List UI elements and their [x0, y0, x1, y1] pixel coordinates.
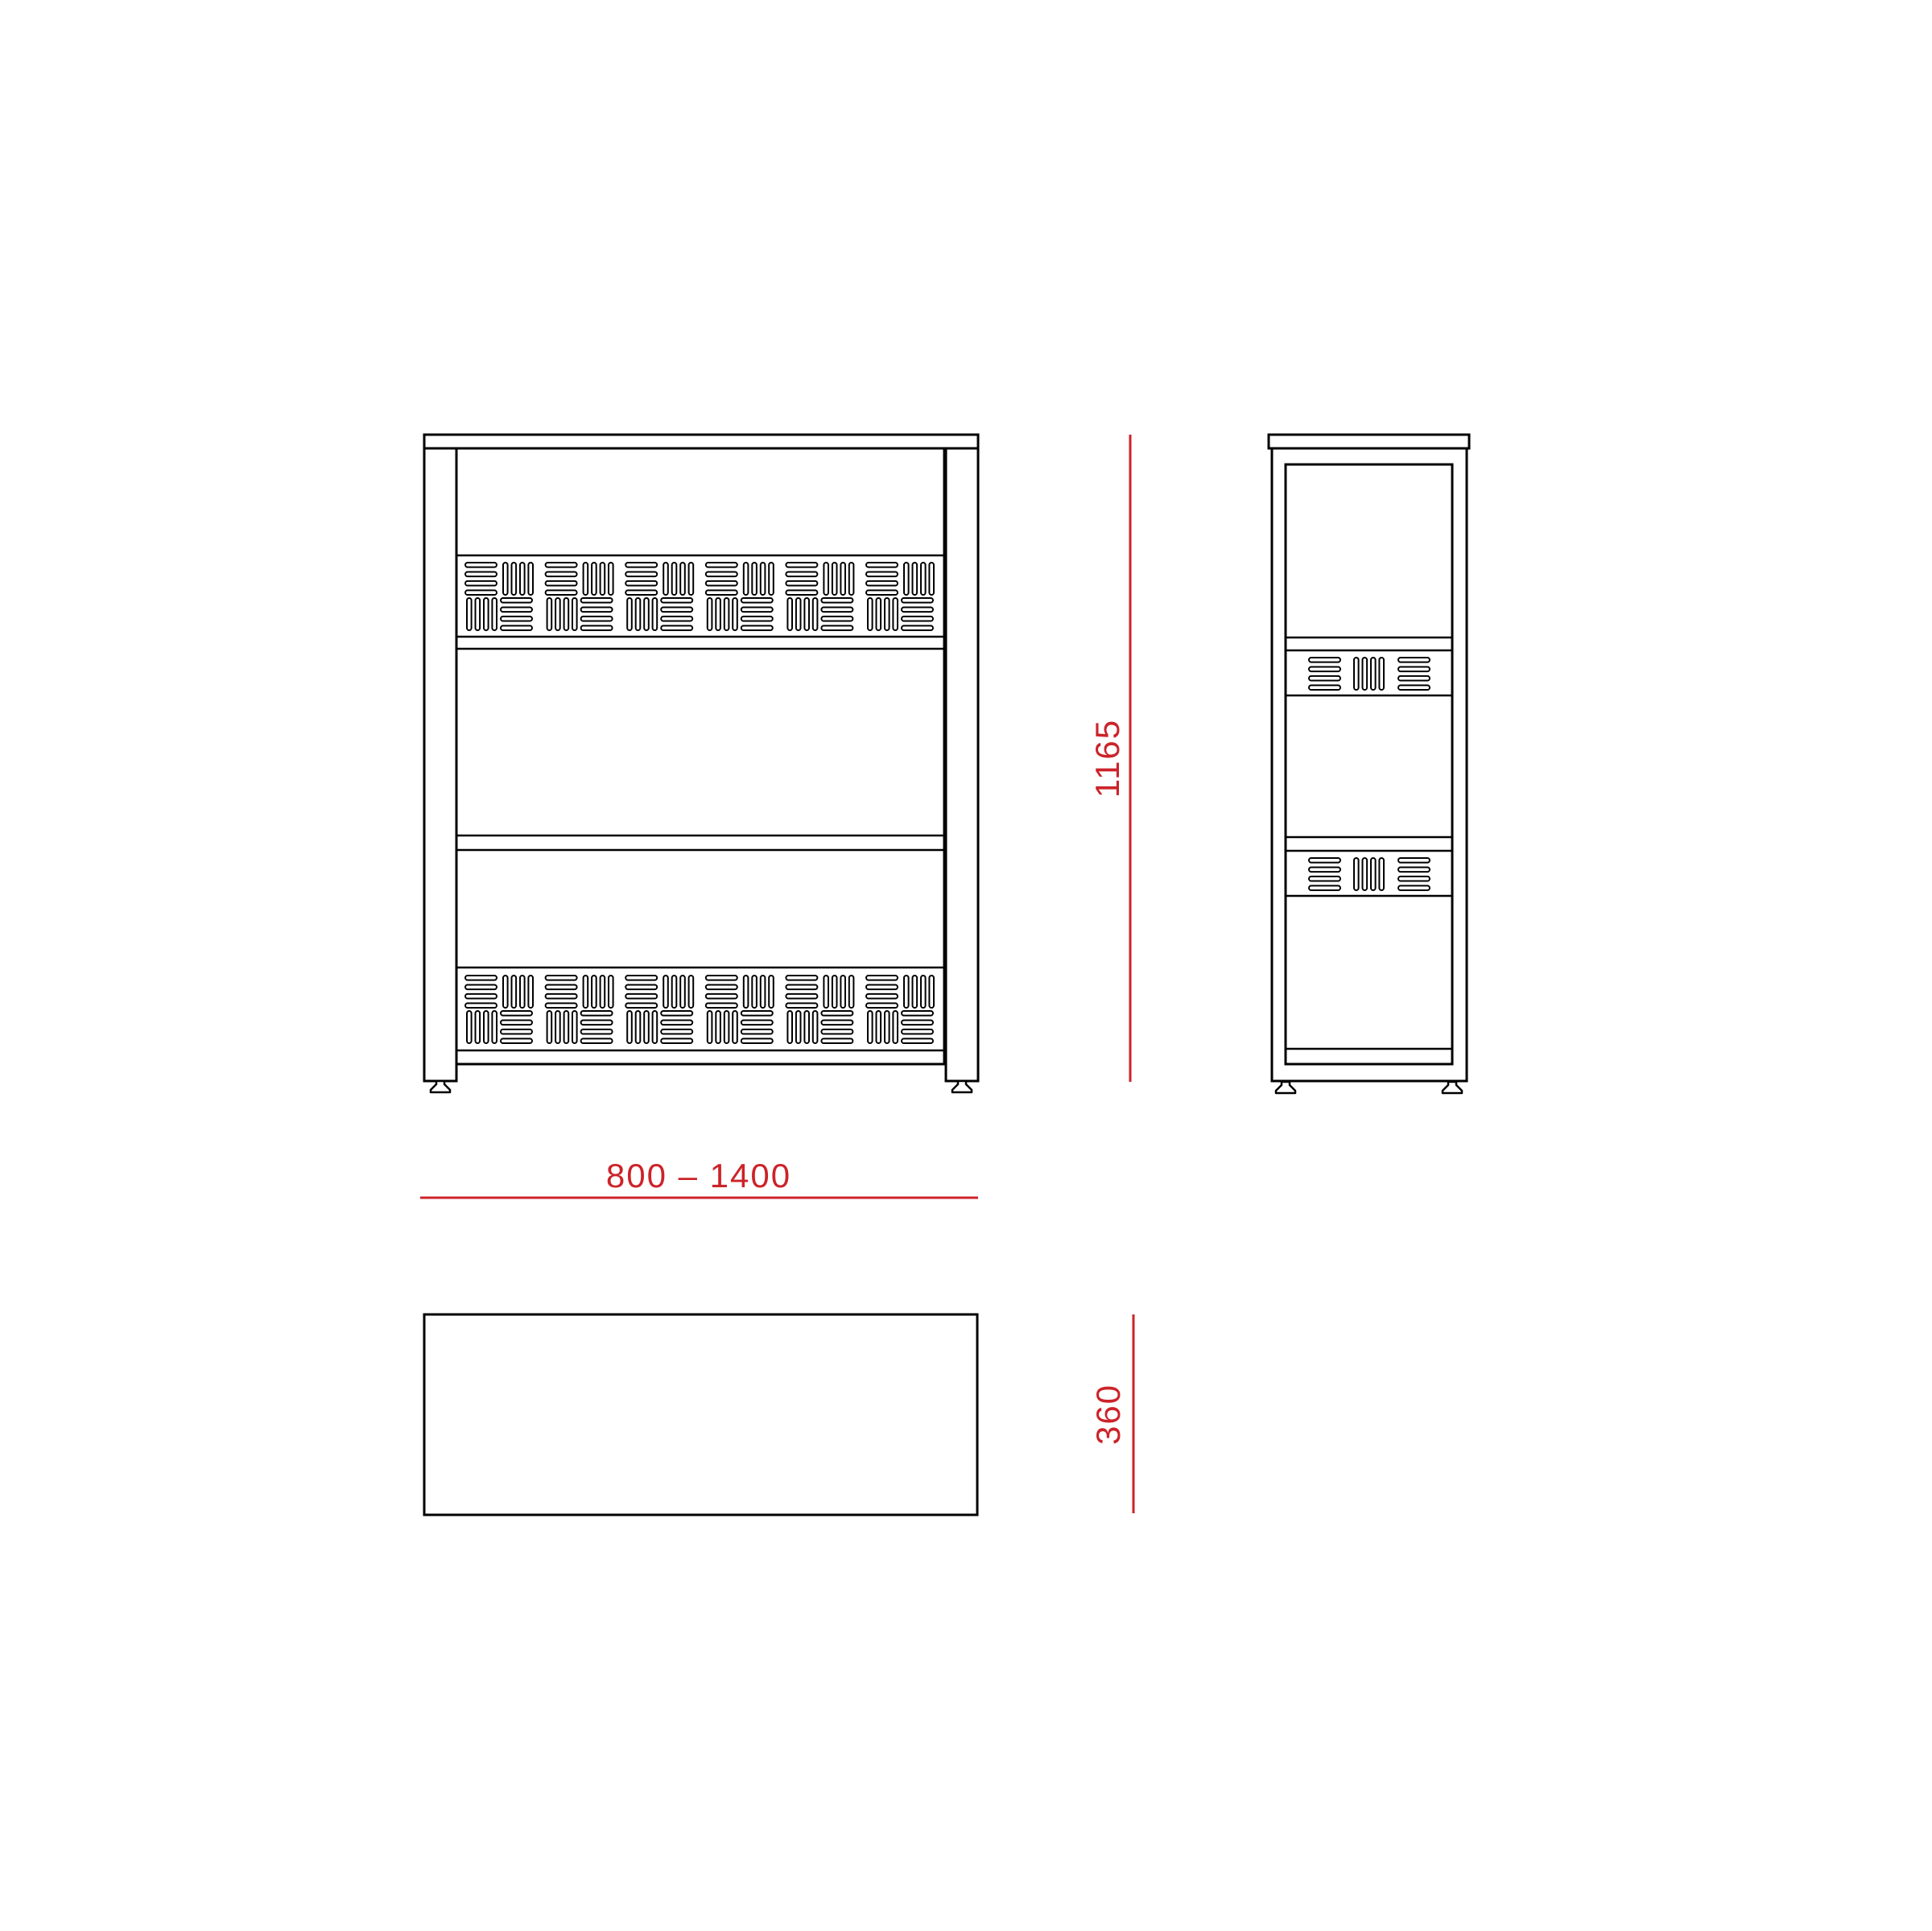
- side-inner-panel: [1286, 464, 1452, 1064]
- top-view-outline: [424, 1314, 977, 1515]
- side-top-panel: [1269, 435, 1469, 448]
- side-view: [1269, 435, 1469, 1081]
- front-left-post: [424, 448, 456, 1081]
- adjustable-foot: [431, 1081, 450, 1092]
- front-top-panel: [424, 435, 978, 448]
- drawing-canvas: 1165 800 – 1400 360: [0, 0, 1932, 1931]
- adjustable-foot: [1443, 1082, 1462, 1093]
- adjustable-foot: [952, 1081, 972, 1092]
- front-inner-panel: [456, 448, 944, 1064]
- technical-drawing-svg: [0, 0, 1932, 1931]
- height-dimension-label: 1165: [1088, 719, 1127, 798]
- adjustable-foot: [1276, 1082, 1295, 1093]
- width-dimension-label: 800 – 1400: [606, 1157, 791, 1195]
- front-right-post: [946, 448, 978, 1081]
- depth-dimension-label: 360: [1089, 1384, 1128, 1445]
- top-view: [424, 1314, 977, 1515]
